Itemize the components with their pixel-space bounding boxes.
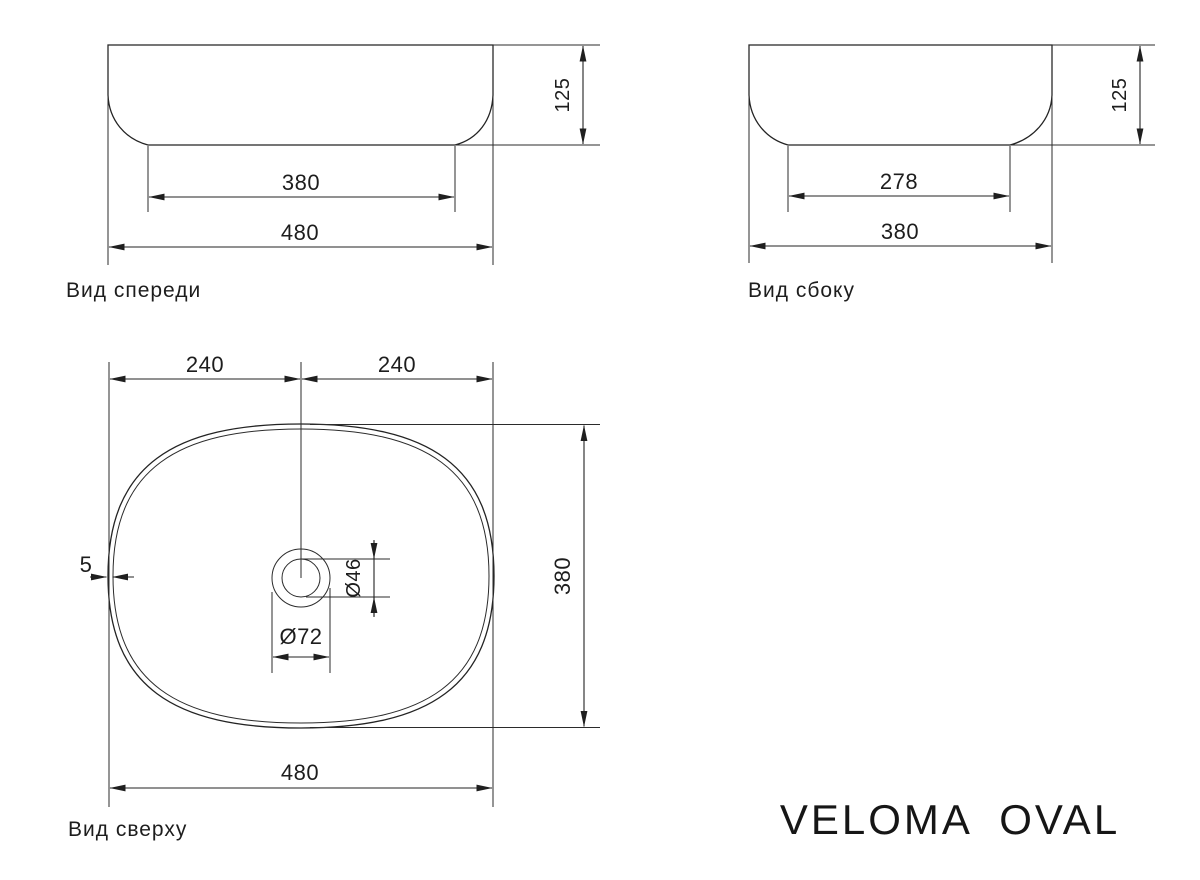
wall-thickness-value: 5 — [80, 552, 93, 577]
front-view: 125 380 480 Вид спереди — [66, 45, 600, 302]
top-view: 240 240 380 480 5 Ø46 — [68, 352, 600, 841]
top-overall-depth-dimension: 380 — [550, 426, 584, 727]
top-overall-depth-value: 380 — [550, 557, 575, 595]
top-view-label: Вид сверху — [68, 818, 187, 841]
top-center-left-dimension: 240 — [110, 352, 300, 379]
top-center-left-value: 240 — [186, 352, 224, 377]
front-overall-width-value: 480 — [281, 220, 319, 245]
drawing-canvas: 125 380 480 Вид спереди 125 278 — [0, 0, 1200, 880]
front-height-dimension: 125 — [552, 46, 583, 144]
side-height-dimension: 125 — [1109, 46, 1140, 144]
side-view-extension-lines — [749, 45, 1155, 263]
side-base-depth-value: 278 — [880, 169, 918, 194]
top-center-right-dimension: 240 — [302, 352, 492, 379]
top-overall-width-value: 480 — [281, 760, 319, 785]
drain-outer-diameter-value: Ø72 — [279, 624, 322, 649]
side-overall-depth-dimension: 380 — [750, 219, 1051, 246]
side-overall-depth-value: 380 — [881, 219, 919, 244]
front-view-basin-outline — [108, 45, 493, 145]
front-overall-width-dimension: 480 — [109, 220, 492, 247]
front-view-extension-lines — [108, 45, 600, 265]
side-view-label: Вид сбоку — [748, 279, 855, 302]
wall-thickness-dimension: 5 — [80, 552, 134, 577]
front-base-width-dimension: 380 — [149, 170, 454, 197]
drain-inner-diameter-dimension: Ø46 — [301, 540, 390, 617]
front-base-width-value: 380 — [282, 170, 320, 195]
top-overall-width-dimension: 480 — [110, 760, 492, 788]
side-base-depth-dimension: 278 — [789, 169, 1009, 196]
top-center-right-value: 240 — [378, 352, 416, 377]
side-view: 125 278 380 Вид сбоку — [748, 45, 1155, 302]
side-height-value: 125 — [1109, 78, 1131, 113]
drain-outer-diameter-dimension: Ø72 — [272, 588, 330, 673]
front-height-value: 125 — [552, 78, 574, 113]
side-view-basin-outline — [749, 45, 1052, 145]
front-view-label: Вид спереди — [66, 279, 201, 302]
technical-drawing-sheet: 125 380 480 Вид спереди 125 278 — [0, 0, 1200, 880]
drain-inner-diameter-value: Ø46 — [343, 558, 365, 597]
product-title: VELOMA OVAL — [780, 796, 1120, 843]
